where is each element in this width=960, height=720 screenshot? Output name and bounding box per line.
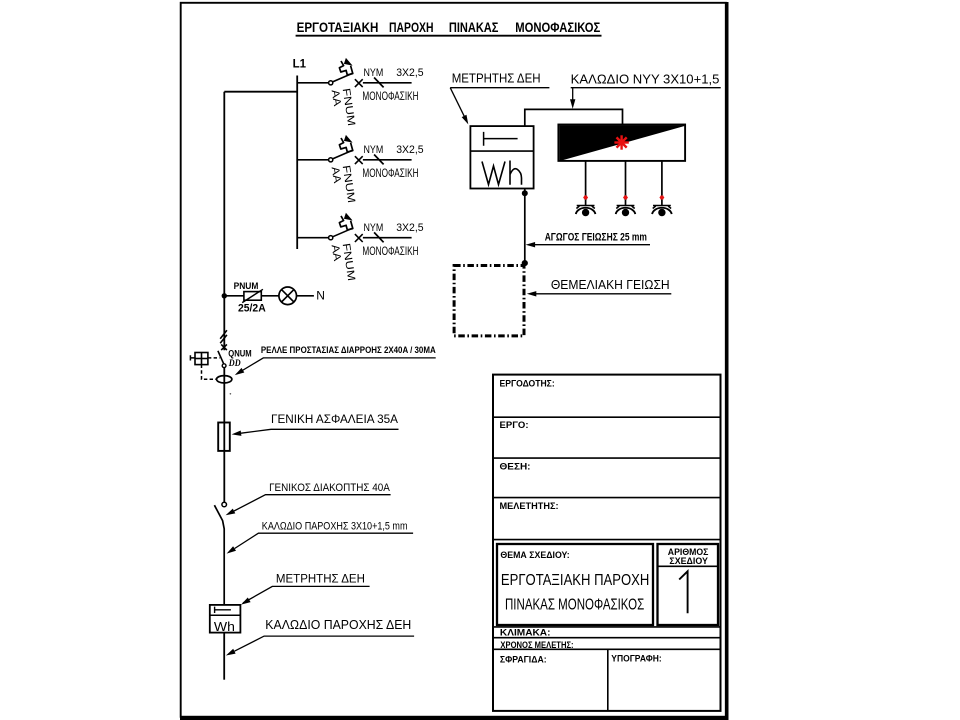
svg-text:ΜΟΝΟΦΑΣΙΚΗ: ΜΟΝΟΦΑΣΙΚΗ [362, 89, 418, 103]
svg-text:ΧΡΟΝΟΣ ΜΕΛΕΤΗΣ:: ΧΡΟΝΟΣ ΜΕΛΕΤΗΣ: [500, 640, 573, 651]
svg-text:ΘΕΣΗ:: ΘΕΣΗ: [500, 462, 531, 473]
svg-text:ΕΡΓΟΔΟΤΗΣ:: ΕΡΓΟΔΟΤΗΣ: [500, 379, 555, 390]
svg-text:ΓΕΝΙΚΟΣ ΔΙΑΚΟΠΤΗΣ 40A: ΓΕΝΙΚΟΣ ΔΙΑΚΟΠΤΗΣ 40A [269, 482, 390, 494]
svg-text:ΜΕΤΡΗΤΗΣ ΔΕΗ: ΜΕΤΡΗΤΗΣ ΔΕΗ [452, 71, 541, 86]
svg-text:ΕΡΓΟΤΑΞΙΑΚΗ ΠΑΡΟΧΗ: ΕΡΓΟΤΑΞΙΑΚΗ ΠΑΡΟΧΗ [501, 572, 649, 589]
svg-text:L1: L1 [293, 59, 307, 71]
svg-text:ΣΦΡΑΓΙΔΑ:: ΣΦΡΑΓΙΔΑ: [500, 655, 547, 666]
svg-text:ΚΑΛΩΔΙΟ ΠΑΡΟΧΗΣ 3X10+1,5 mm: ΚΑΛΩΔΙΟ ΠΑΡΟΧΗΣ 3X10+1,5 mm [262, 521, 408, 533]
svg-text:ΜΕΛΕΤΗΤΗΣ:: ΜΕΛΕΤΗΤΗΣ: [500, 501, 559, 512]
svg-text:ΕΡΓΟ:: ΕΡΓΟ: [500, 420, 529, 431]
svg-text:NYM: NYM [364, 67, 384, 79]
svg-text:ΠΙΝΑΚΑΣ: ΠΙΝΑΚΑΣ [449, 20, 499, 36]
svg-text:ΜΟΝΟΦΑΣΙΚΟΣ: ΜΟΝΟΦΑΣΙΚΟΣ [515, 20, 600, 36]
svg-text:ΘΕΜΑ ΣΧΕΔΙΟΥ:: ΘΕΜΑ ΣΧΕΔΙΟΥ: [500, 550, 569, 561]
svg-text:ΓΕΝΙΚΗ ΑΣΦΑΛΕΙΑ 35A: ΓΕΝΙΚΗ ΑΣΦΑΛΕΙΑ 35A [271, 412, 399, 426]
svg-text:ΣΧΕΔΙΟΥ: ΣΧΕΔΙΟΥ [669, 556, 708, 567]
svg-text:ΘΕΜΕΛΙΑΚΗ ΓΕΙΩΣΗ: ΘΕΜΕΛΙΑΚΗ ΓΕΙΩΣΗ [551, 277, 670, 292]
svg-text:ΜΕΤΡΗΤΗΣ ΔΕΗ: ΜΕΤΡΗΤΗΣ ΔΕΗ [276, 571, 365, 585]
svg-text:ΚΑΛΩΔΙΟ ΠΑΡΟΧΗΣ ΔΕΗ: ΚΑΛΩΔΙΟ ΠΑΡΟΧΗΣ ΔΕΗ [265, 618, 411, 632]
svg-text:PNUM: PNUM [234, 280, 259, 291]
svg-text:3X2,5: 3X2,5 [396, 67, 423, 79]
svg-text:ΚΑΛΩΔΙΟ NYY 3X10+1,5: ΚΑΛΩΔΙΟ NYY 3X10+1,5 [571, 71, 720, 86]
svg-text:ΕΡΓΟΤΑΞΙΑΚΗ: ΕΡΓΟΤΑΞΙΑΚΗ [297, 20, 379, 36]
svg-text:N: N [316, 289, 325, 303]
svg-text:DD: DD [228, 358, 241, 369]
svg-text:ΠΑΡΟΧΗ: ΠΑΡΟΧΗ [389, 20, 434, 36]
svg-text:25/2A: 25/2A [238, 303, 266, 315]
svg-text:Wh: Wh [214, 619, 235, 634]
svg-text:AA: AA [329, 89, 343, 108]
svg-text:ΑΓΩΓΟΣ ΓΕΙΩΣΗΣ 25 mm: ΑΓΩΓΟΣ ΓΕΙΩΣΗΣ 25 mm [545, 231, 647, 243]
svg-text:ΡΕΛΛΕ ΠΡΟΣΤΑΣΙΑΣ ΔΙΑΡΡΟΗΣ 2: ΡΕΛΛΕ ΠΡΟΣΤΑΣΙΑΣ ΔΙΑΡΡΟΗΣ 2X40A / 30ΜΑ [261, 345, 436, 356]
svg-text:ΚΛΙΜΑΚΑ:: ΚΛΙΜΑΚΑ: [500, 628, 551, 639]
svg-text:ΥΠΟΓΡΑΦΗ:: ΥΠΟΓΡΑΦΗ: [611, 653, 661, 664]
svg-text:ΠΙΝΑΚΑΣ ΜΟΝΟΦΑΣΙΚΟΣ: ΠΙΝΑΚΑΣ ΜΟΝΟΦΑΣΙΚΟΣ [505, 596, 644, 613]
